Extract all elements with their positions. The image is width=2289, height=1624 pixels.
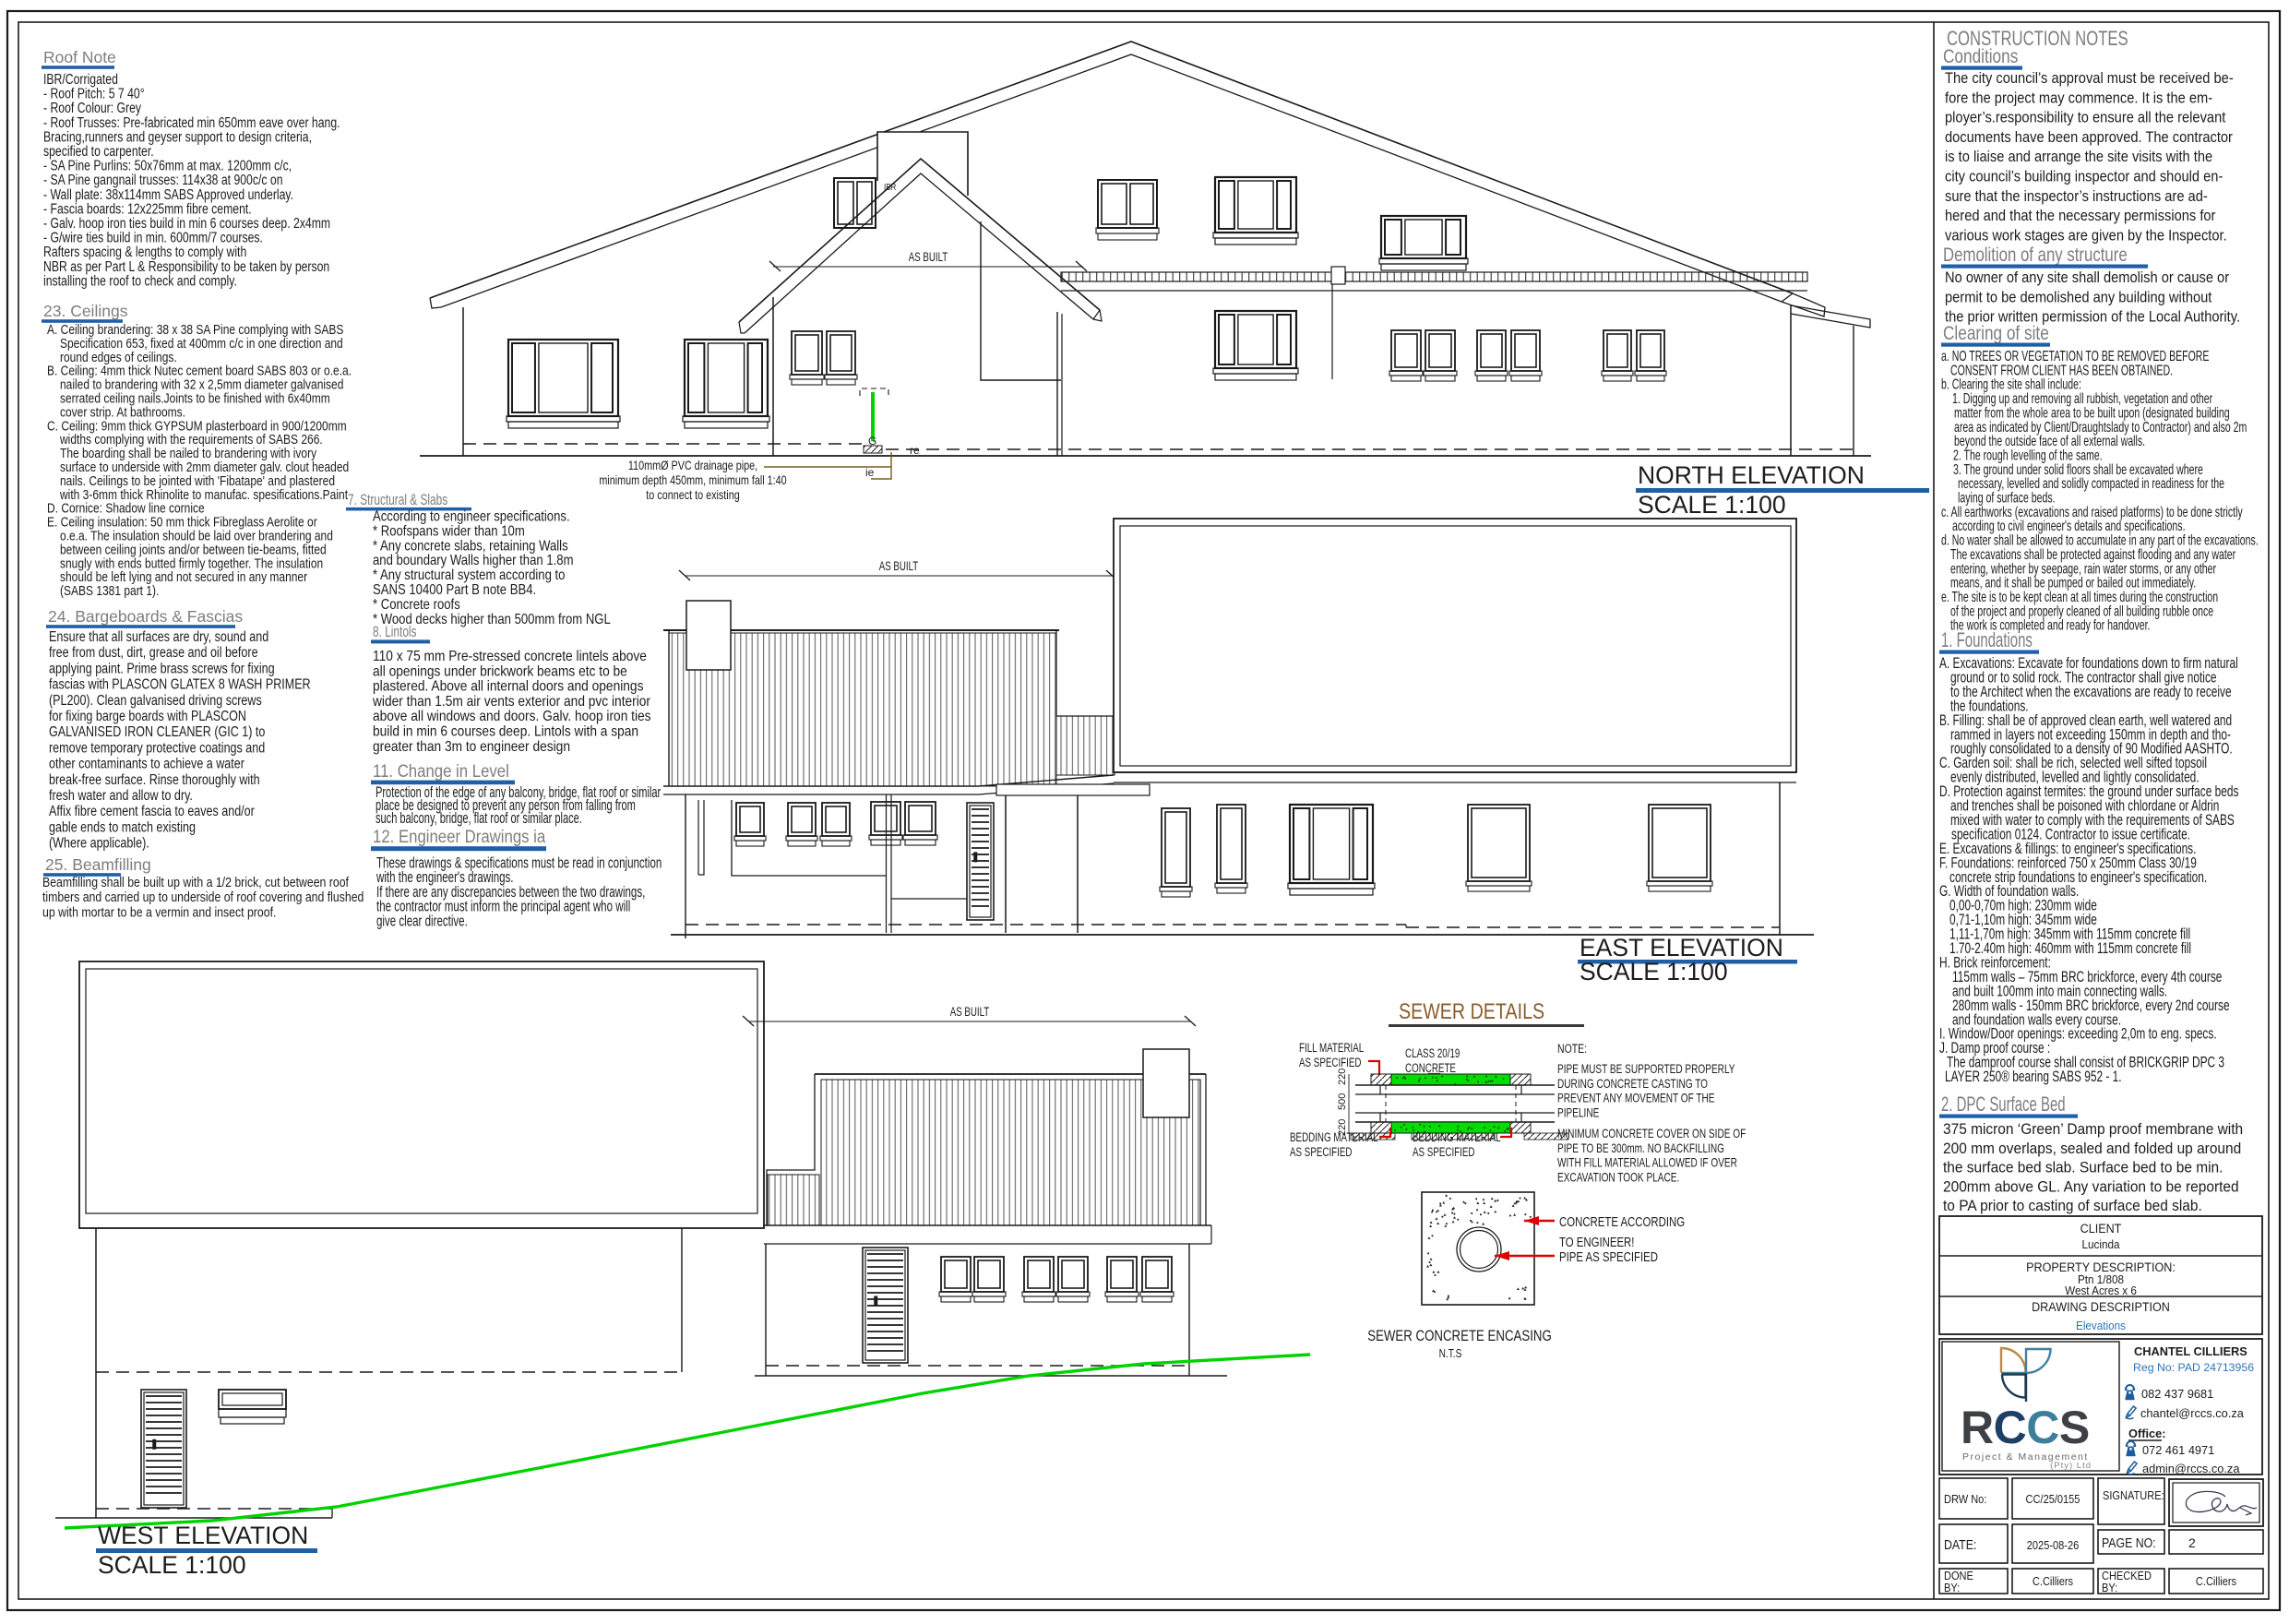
svg-text:applying paint. Prime brass sc: applying paint. Prime brass screws for f… (49, 660, 275, 675)
svg-text:SIGNATURE:: SIGNATURE: (2103, 1488, 2164, 1502)
svg-text:* Concrete roofs: * Concrete roofs (373, 597, 460, 613)
svg-text:the surface bed slab. Surface: the surface bed slab. Surface bed to be … (1943, 1160, 2223, 1176)
svg-text:ie: ie (865, 466, 875, 479)
svg-text:PIPE TO BE 300mm. NO BACKFILLI: PIPE TO BE 300mm. NO BACKFILLING (1557, 1140, 1724, 1155)
svg-text:DRAWING DESCRIPTION: DRAWING DESCRIPTION (2032, 1299, 2170, 1314)
svg-text:to PA prior to casting of surf: to PA prior to casting of surface bed sl… (1943, 1199, 2202, 1214)
svg-text:110mmØ PVC drainage pipe,: 110mmØ PVC drainage pipe, (628, 459, 757, 472)
svg-text:and boundary Walls higher than: and boundary Walls higher than 1.8m (373, 553, 573, 568)
svg-text:C.Cilliers: C.Cilliers (2196, 1574, 2236, 1588)
svg-text:SEWER CONCRETE ENCASING: SEWER CONCRETE ENCASING (1367, 1328, 1552, 1345)
svg-text:PIPE AS SPECIFIED: PIPE AS SPECIFIED (1559, 1248, 1658, 1264)
svg-text:MINIMUM CONCRETE COVER ON SIDE: MINIMUM CONCRETE COVER ON SIDE OF (1557, 1126, 1746, 1140)
svg-text:gable ends to match existing: gable ends to match existing (49, 818, 196, 834)
svg-text:PIPELINE: PIPELINE (1557, 1105, 1599, 1120)
svg-text:TO ENGINEER!: TO ENGINEER! (1559, 1234, 1634, 1249)
svg-text:Conditions: Conditions (1943, 47, 2018, 68)
svg-text:CLIENT: CLIENT (2080, 1221, 2122, 1236)
svg-text:Office:: Office: (2128, 1427, 2166, 1440)
svg-text:072 461 4971: 072 461 4971 (2142, 1443, 2214, 1457)
svg-text:permit to be demolished any bu: permit to be demolished any building wit… (1945, 290, 2212, 306)
svg-text:(PL200). Clean galvanised driv: (PL200). Clean galvanised driving screws (49, 692, 262, 708)
svg-text:200mm above GL. Any variation: 200mm above GL. Any variation to be repo… (1943, 1179, 2239, 1195)
svg-text:375 micron ‘Green’ Damp proof: 375 micron ‘Green’ Damp proof membrane w… (1943, 1122, 2243, 1138)
svg-text:220: 220 (1337, 1069, 1348, 1085)
svg-text:DATE:: DATE: (1944, 1537, 1976, 1552)
svg-text:AS BUILT: AS BUILT (909, 251, 948, 265)
svg-text:give clear directive.: give clear directive. (376, 913, 468, 930)
svg-text:AS SPECIFIED: AS SPECIFIED (1290, 1144, 1353, 1159)
svg-text:12. Engineer Drawings ia: 12. Engineer Drawings ia (373, 827, 546, 846)
svg-text:WEST ELEVATION: WEST ELEVATION (98, 1522, 308, 1549)
svg-text:PIPE MUST BE SUPPORTED PROPERL: PIPE MUST BE SUPPORTED PROPERLY (1557, 1061, 1735, 1076)
svg-text:minimum depth 450mm, minimum f: minimum depth 450mm, minimum fall 1:40 (599, 473, 787, 487)
svg-text:remove temporary protective co: remove temporary protective coatings and (49, 739, 265, 755)
svg-text:BEDDING MATERIAL: BEDDING MATERIAL (1290, 1129, 1378, 1144)
svg-text:PREVENT ANY MOVEMENT OF THE: PREVENT ANY MOVEMENT OF THE (1557, 1091, 1715, 1105)
svg-text:CONCRETE ACCORDING: CONCRETE ACCORDING (1559, 1213, 1685, 1229)
svg-text:admin@rccs.co.za: admin@rccs.co.za (2142, 1462, 2240, 1475)
svg-text:sure that the inspector’s inst: sure that the inspector’s instructions a… (1945, 188, 2208, 205)
svg-text:Elevations: Elevations (2076, 1319, 2126, 1332)
svg-text:CHANTEL CILLIERS: CHANTEL CILLIERS (2134, 1344, 2247, 1358)
svg-text:other contaminants to achieve: other contaminants to achieve a water (49, 755, 244, 770)
svg-text:BY:: BY: (1944, 1581, 1960, 1594)
svg-text:N.T.S: N.T.S (1439, 1347, 1462, 1360)
svg-text:AS BUILT: AS BUILT (950, 1006, 989, 1020)
svg-text:200 mm overlaps, sealed and fo: 200 mm overlaps, sealed and folded up ar… (1943, 1140, 2241, 1156)
svg-text:7. Structural & Slabs: 7. Structural & Slabs (348, 492, 447, 508)
svg-text:such balcony, bridge, flat roo: such balcony, bridge, flat roof or simil… (376, 809, 582, 827)
svg-text:2: 2 (2188, 1535, 2196, 1550)
svg-text:* Roofspans wider than 10m: * Roofspans wider than 10m (373, 523, 525, 539)
svg-text:hered and that the necessary p: hered and that the necessary permissions… (1945, 208, 2215, 224)
svg-text:greater than 3m to engineer de: greater than 3m to engineer design (373, 738, 570, 755)
svg-text:CLASS 20/19: CLASS 20/19 (1405, 1045, 1460, 1060)
svg-text:Affix fibre cement fascia to e: Affix fibre cement fascia to eaves and/o… (49, 803, 255, 818)
svg-text:No owner of any site shall dem: No owner of any site shall demolish or c… (1945, 269, 2229, 286)
svg-text:RCCS: RCCS (1961, 1402, 2090, 1453)
svg-text:LAYER 250® bearing SABS 952 -: LAYER 250® bearing SABS 952 - 1. (1945, 1069, 2122, 1086)
svg-text:According to engineer specific: According to engineer specifications. (373, 508, 570, 524)
svg-text:up with mortar to be a vermin: up with mortar to be a vermin and insect… (42, 904, 276, 919)
svg-text:Reg No: PAD 24713956: Reg No: PAD 24713956 (2133, 1361, 2254, 1374)
svg-text:8. Lintols: 8. Lintols (373, 624, 417, 640)
svg-text:C.Cilliers: C.Cilliers (2033, 1574, 2073, 1588)
svg-text:* Any concrete slabs, retainin: * Any concrete slabs, retaining Walls (373, 538, 568, 554)
svg-text:ployer’s.responsibility to ens: ployer’s.responsibility to ensure all th… (1945, 110, 2226, 126)
svg-text:(Where applicable).: (Where applicable). (49, 834, 149, 850)
svg-text:DURING CONCRETE CASTING TO: DURING CONCRETE CASTING TO (1557, 1076, 1708, 1091)
svg-text:SCALE 1:100: SCALE 1:100 (1580, 958, 1728, 985)
svg-text:fore the project may commence.: fore the project may commence. It is the… (1945, 90, 2212, 107)
svg-text:1. Foundations: 1. Foundations (1941, 628, 2033, 651)
svg-text:24. Bargeboards & Fascias: 24. Bargeboards & Fascias (48, 607, 243, 626)
svg-text:2. DPC Surface Bed: 2. DPC Surface Bed (1941, 1093, 2066, 1116)
svg-text:free from dust, dirt, grease a: free from dust, dirt, grease and oil bef… (49, 644, 258, 660)
svg-text:Clearing of site: Clearing of site (1943, 324, 2049, 345)
svg-text:Lucinda: Lucinda (2082, 1237, 2120, 1251)
svg-text:AS BUILT: AS BUILT (879, 560, 918, 574)
svg-text:CC/25/0155: CC/25/0155 (2026, 1492, 2080, 1506)
svg-text:chantel@rccs.co.za: chantel@rccs.co.za (2140, 1406, 2245, 1420)
svg-text:25. Beamfilling: 25. Beamfilling (45, 855, 151, 874)
svg-text:SEWER DETAILS: SEWER DETAILS (1399, 998, 1544, 1023)
svg-text:Beamfilling shall be built up: Beamfilling shall be built up with a 1/2… (42, 875, 349, 890)
svg-text:West Acres x 6: West Acres x 6 (2065, 1284, 2137, 1297)
svg-text:SCALE 1:100: SCALE 1:100 (1638, 491, 1786, 519)
svg-text:fresh water and allow to dry.: fresh water and allow to dry. (49, 787, 193, 803)
svg-text:Roof Note: Roof Note (43, 48, 116, 66)
svg-text:PAGE NO:: PAGE NO: (2102, 1535, 2156, 1550)
svg-text:timbers and carried up to unde: timbers and carried up to underside of r… (42, 890, 364, 904)
svg-text:NORTH ELEVATION: NORTH ELEVATION (1638, 461, 1865, 489)
svg-text:various work stages are given: various work stages are given by the Ins… (1945, 228, 2227, 245)
svg-text:EXCAVATION TOOK PLACE.: EXCAVATION TOOK PLACE. (1557, 1170, 1679, 1185)
svg-text:BEDDING MATERIAL: BEDDING MATERIAL (1413, 1129, 1501, 1144)
svg-text:AS SPECIFIED: AS SPECIFIED (1299, 1055, 1362, 1069)
svg-text:2025-08-26: 2025-08-26 (2027, 1538, 2080, 1552)
svg-text:DRW No:: DRW No: (1944, 1492, 1986, 1506)
svg-text:city council’s building inspec: city council’s building inspector and sh… (1945, 169, 2223, 185)
svg-text:Ensure that all surfaces are d: Ensure that all surfaces are dry, sound … (49, 628, 268, 644)
svg-text:SANS 10400 Part B note BB4.: SANS 10400 Part B note BB4. (373, 582, 536, 598)
svg-text:FILL MATERIAL: FILL MATERIAL (1299, 1040, 1364, 1055)
svg-text:documents have been approved.: documents have been approved. The contra… (1945, 129, 2233, 146)
svg-text:500: 500 (1337, 1093, 1348, 1110)
svg-text:11. Change in Level: 11. Change in Level (373, 761, 509, 781)
svg-text:for fixing barge boards with P: for fixing barge boards with PLASCON (49, 708, 246, 723)
svg-text:AS SPECIFIED: AS SPECIFIED (1413, 1144, 1475, 1159)
svg-text:(SABS 1381 part 1).: (SABS 1381 part 1). (60, 583, 159, 599)
svg-text:is to liaise and arrange the s: is to liaise and arrange the site visits… (1945, 149, 2212, 166)
svg-text:* Any structural system accord: * Any structural system according to (373, 567, 565, 583)
svg-text:BY:: BY: (2102, 1581, 2117, 1594)
svg-text:NOTE:: NOTE: (1557, 1042, 1587, 1057)
svg-text:Demolition of any structure: Demolition of any structure (1943, 245, 2128, 266)
svg-text:SCALE 1:100: SCALE 1:100 (98, 1551, 246, 1579)
svg-text:23. Ceilings: 23. Ceilings (43, 302, 128, 320)
svg-text:installing the roof to check a: installing the roof to check and comply. (43, 272, 237, 289)
svg-text:GALVANISED IRON CLEANER (GIC 1: GALVANISED IRON CLEANER (GIC 1) to (49, 723, 266, 739)
svg-text:to connect to existing: to connect to existing (646, 488, 740, 502)
svg-text:WITH FILL MATERIAL ALLOWED IF: WITH FILL MATERIAL ALLOWED IF OVER (1557, 1155, 1737, 1170)
svg-text:082 437 9681: 082 437 9681 (2141, 1387, 2213, 1401)
svg-text:fascias with PLASCON GLATEX 8: fascias with PLASCON GLATEX 8 WASH PRIME… (49, 675, 311, 691)
svg-text:The city council’s approval mu: The city council’s approval must be rece… (1945, 70, 2234, 87)
svg-text:(Pty) Ltd: (Pty) Ltd (2050, 1461, 2092, 1471)
svg-text:re: re (910, 444, 920, 457)
svg-text:break-free surface. Rinse tho: break-free surface. Rinse thoroughly wit… (49, 771, 260, 787)
